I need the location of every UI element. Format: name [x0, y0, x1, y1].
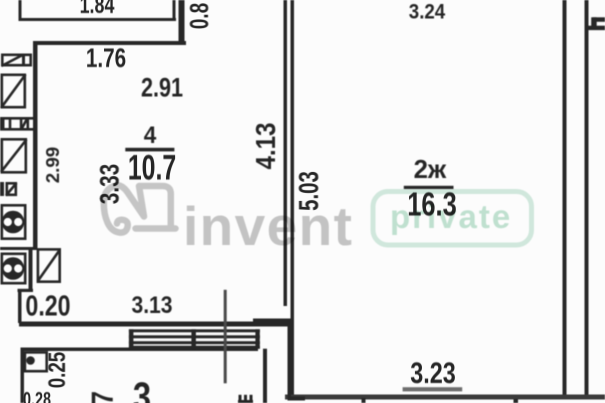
svg-text:private: private [390, 198, 512, 235]
svg-text:invent: invent [183, 195, 353, 257]
